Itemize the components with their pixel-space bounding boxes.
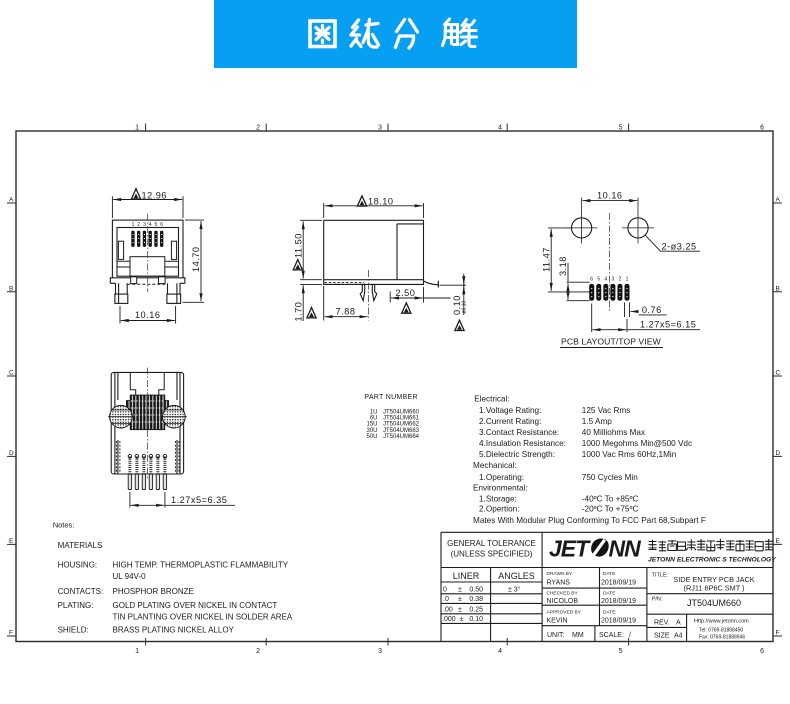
svg-text:1: 1 bbox=[135, 125, 139, 132]
svg-text:5.Dielectric Strength:: 5.Dielectric Strength: bbox=[479, 450, 555, 459]
svg-text:11.47: 11.47 bbox=[542, 247, 552, 272]
svg-text:E: E bbox=[9, 538, 14, 545]
svg-text:C: C bbox=[9, 370, 14, 377]
svg-text:JET: JET bbox=[549, 535, 591, 561]
svg-text:UL 94V-0: UL 94V-0 bbox=[113, 572, 147, 581]
svg-text:A: A bbox=[9, 197, 14, 204]
svg-text:125 Vac Rms: 125 Vac Rms bbox=[582, 406, 631, 415]
svg-text:D: D bbox=[776, 450, 781, 457]
svg-text:-20ºC To +75ºC: -20ºC To +75ºC bbox=[582, 505, 639, 514]
svg-text:±: ± bbox=[458, 606, 462, 613]
svg-text:0.50: 0.50 bbox=[469, 586, 483, 593]
svg-text:0: 0 bbox=[443, 586, 447, 593]
svg-text:A: A bbox=[776, 197, 781, 204]
svg-text:3: 3 bbox=[143, 222, 146, 228]
svg-text:2018/09/19: 2018/09/19 bbox=[601, 618, 636, 625]
svg-text:SHIELD:: SHIELD: bbox=[58, 626, 89, 635]
svg-text:(RJ11 6P6C SMT ): (RJ11 6P6C SMT ) bbox=[684, 583, 745, 592]
svg-text:4: 4 bbox=[604, 277, 607, 283]
svg-text:NN: NN bbox=[609, 535, 642, 561]
svg-text:CONTACTS:: CONTACTS: bbox=[58, 587, 104, 596]
svg-text:NICOLOB: NICOLOB bbox=[547, 598, 579, 605]
svg-text:B: B bbox=[9, 285, 13, 292]
svg-text:Fax: 0769-81888946: Fax: 0769-81888946 bbox=[699, 635, 745, 641]
svg-text:TIN PLANTING OVER NICKEL IN SO: TIN PLANTING OVER NICKEL IN SOLDER AREA bbox=[113, 612, 293, 621]
svg-text:Environmental:: Environmental: bbox=[473, 484, 528, 493]
svg-text:ø0.10: ø0.10 bbox=[462, 300, 468, 313]
svg-text:10.16: 10.16 bbox=[135, 310, 161, 320]
svg-text:SCALE:: SCALE: bbox=[599, 632, 624, 639]
svg-text:2-ø3.25: 2-ø3.25 bbox=[662, 242, 697, 252]
svg-text:1.Storage:: 1.Storage: bbox=[479, 495, 517, 504]
svg-text:50U: 50U bbox=[366, 434, 377, 440]
svg-text:C: C bbox=[776, 370, 781, 377]
svg-text:2.Current Rating:: 2.Current Rating: bbox=[479, 417, 541, 426]
svg-text:PCB LAYOUT/TOP VIEW: PCB LAYOUT/TOP VIEW bbox=[561, 337, 662, 347]
svg-text:E: E bbox=[776, 538, 781, 545]
svg-text:.0: .0 bbox=[443, 596, 449, 603]
svg-text:6: 6 bbox=[760, 648, 764, 655]
svg-text:JT504UM664: JT504UM664 bbox=[383, 434, 420, 440]
svg-text:6: 6 bbox=[160, 222, 163, 228]
svg-text:JT504UM662: JT504UM662 bbox=[383, 421, 420, 427]
svg-text:F: F bbox=[9, 630, 13, 637]
svg-text:0.76: 0.76 bbox=[642, 305, 662, 315]
svg-text:2.50: 2.50 bbox=[396, 288, 416, 298]
svg-text:A: A bbox=[676, 620, 681, 627]
svg-text:1000 Vac Rms 60Hz,1Min: 1000 Vac Rms 60Hz,1Min bbox=[582, 450, 677, 459]
svg-text:10.16: 10.16 bbox=[597, 190, 623, 200]
svg-text:GENERAL TOLERANCE: GENERAL TOLERANCE bbox=[447, 539, 536, 548]
svg-text:40 Milliohms Max: 40 Milliohms Max bbox=[582, 428, 645, 437]
svg-text:2: 2 bbox=[256, 125, 260, 132]
svg-text:0.25: 0.25 bbox=[469, 606, 483, 613]
svg-text:3.Contact Resistance:: 3.Contact Resistance: bbox=[479, 428, 559, 437]
svg-text:P/N:: P/N: bbox=[652, 597, 663, 603]
svg-text:(UNLESS SPECIFIED): (UNLESS SPECIFIED) bbox=[451, 550, 533, 559]
svg-text:BRASS PLATING NICKEL ALLOY: BRASS PLATING NICKEL ALLOY bbox=[113, 626, 235, 635]
svg-text:1.5 Amp: 1.5 Amp bbox=[582, 417, 612, 426]
svg-text:14.70: 14.70 bbox=[191, 247, 201, 273]
svg-text:Http://www.jetonn.com: Http://www.jetonn.com bbox=[694, 619, 749, 625]
svg-text:2: 2 bbox=[619, 277, 622, 283]
svg-text:1: 1 bbox=[135, 648, 139, 655]
svg-text:GOLD PLATING OVER NICKEL IN CO: GOLD PLATING OVER NICKEL IN CONTACT bbox=[113, 601, 278, 610]
svg-text:Tel: 0769-81888450: Tel: 0769-81888450 bbox=[699, 628, 743, 634]
svg-text:MATERIALS: MATERIALS bbox=[58, 541, 103, 550]
svg-text:4: 4 bbox=[498, 125, 502, 132]
svg-text:.00: .00 bbox=[443, 606, 453, 613]
svg-text:12.96: 12.96 bbox=[142, 190, 168, 200]
svg-text:REV.: REV. bbox=[654, 620, 670, 627]
svg-text:1.Operating:: 1.Operating: bbox=[479, 473, 524, 482]
svg-text:A4: A4 bbox=[674, 633, 683, 640]
svg-text:15U: 15U bbox=[366, 421, 377, 427]
svg-text:DATE: DATE bbox=[603, 571, 615, 577]
svg-text:1.27x5=6.15: 1.27x5=6.15 bbox=[640, 320, 696, 330]
svg-text:6: 6 bbox=[760, 125, 764, 132]
svg-text:PHOSPHOR BRONZE: PHOSPHOR BRONZE bbox=[113, 587, 194, 596]
svg-text:5: 5 bbox=[619, 125, 623, 132]
svg-text:JETONN ELECTRONIC S TECHNOLOGY: JETONN ELECTRONIC S TECHNOLOGY bbox=[648, 557, 776, 564]
svg-text:MM: MM bbox=[572, 632, 584, 639]
svg-text:D: D bbox=[9, 450, 14, 457]
svg-text:5: 5 bbox=[597, 277, 600, 283]
svg-text:1: 1 bbox=[626, 277, 629, 283]
svg-text:4.Insulation Resistance:: 4.Insulation Resistance: bbox=[479, 439, 566, 448]
svg-text:750 Cycles Min: 750 Cycles Min bbox=[582, 473, 638, 482]
svg-text:5: 5 bbox=[619, 648, 623, 655]
svg-text:4: 4 bbox=[149, 222, 152, 228]
svg-text:/: / bbox=[629, 632, 631, 639]
svg-text:±: ± bbox=[458, 586, 462, 593]
svg-text:CHECKED BY: CHECKED BY bbox=[547, 591, 579, 597]
svg-text:6: 6 bbox=[590, 277, 593, 283]
svg-text:RYANS: RYANS bbox=[547, 580, 571, 587]
svg-text:0.10: 0.10 bbox=[469, 616, 483, 623]
svg-text:DRAWN BY: DRAWN BY bbox=[547, 571, 573, 577]
svg-text:2.Opertion:: 2.Opertion: bbox=[479, 505, 520, 514]
svg-text:DATE: DATE bbox=[603, 610, 615, 616]
svg-text:18.10: 18.10 bbox=[368, 197, 394, 207]
svg-text:1.70: 1.70 bbox=[294, 302, 304, 322]
svg-text:1.27x5=6.35: 1.27x5=6.35 bbox=[171, 495, 227, 505]
svg-text:0.38: 0.38 bbox=[469, 596, 483, 603]
svg-text:7.88: 7.88 bbox=[336, 306, 356, 316]
svg-text:4: 4 bbox=[498, 648, 502, 655]
svg-text:TITLE:: TITLE: bbox=[652, 573, 669, 579]
svg-text:APPROVED BY: APPROVED BY bbox=[547, 610, 582, 616]
svg-text:1000 Megohms Min@500 Vdc: 1000 Megohms Min@500 Vdc bbox=[582, 439, 692, 448]
svg-text:HOUSING:: HOUSING: bbox=[58, 561, 98, 570]
svg-text:SIZE: SIZE bbox=[654, 633, 670, 640]
svg-text:HIGH TEMP. THERMOPLASTIC FLAMM: HIGH TEMP. THERMOPLASTIC FLAMMABILITY bbox=[113, 561, 289, 570]
svg-text:2018/09/19: 2018/09/19 bbox=[601, 598, 636, 605]
svg-text:11.50: 11.50 bbox=[294, 233, 304, 258]
svg-text:2: 2 bbox=[256, 648, 260, 655]
svg-text:PLATING:: PLATING: bbox=[58, 601, 94, 610]
svg-text:LINER: LINER bbox=[453, 571, 480, 581]
svg-text:2: 2 bbox=[137, 222, 140, 228]
svg-text:F: F bbox=[776, 630, 780, 637]
svg-text:UNIT:: UNIT: bbox=[547, 632, 565, 639]
svg-text:0.10: 0.10 bbox=[452, 295, 462, 315]
svg-text:2018/09/19: 2018/09/19 bbox=[601, 580, 636, 587]
svg-text:3: 3 bbox=[378, 125, 382, 132]
svg-text:B: B bbox=[776, 285, 780, 292]
svg-text:3: 3 bbox=[612, 277, 615, 283]
svg-text:Electrical:: Electrical: bbox=[474, 395, 510, 404]
svg-text:Mechanical:: Mechanical: bbox=[473, 461, 517, 470]
svg-text:ANGLES: ANGLES bbox=[498, 571, 535, 581]
svg-text:1: 1 bbox=[132, 222, 135, 228]
svg-text:±: ± bbox=[460, 616, 464, 623]
svg-text:JT504UM660: JT504UM660 bbox=[687, 598, 741, 608]
svg-text:3.18: 3.18 bbox=[558, 256, 568, 276]
svg-text:± 3°: ± 3° bbox=[508, 585, 521, 593]
svg-text:.000: .000 bbox=[442, 616, 456, 623]
svg-text:3: 3 bbox=[378, 648, 382, 655]
svg-text:5: 5 bbox=[155, 222, 158, 228]
svg-text:1.Voltage Rating:: 1.Voltage Rating: bbox=[479, 406, 541, 415]
svg-text:Mates With Modular Plug Confor: Mates With Modular Plug Conforming To FC… bbox=[473, 516, 706, 525]
svg-text:-40ºC To +85ºC: -40ºC To +85ºC bbox=[582, 495, 639, 504]
svg-text:Notes:: Notes: bbox=[53, 520, 75, 529]
svg-text:DATE: DATE bbox=[603, 591, 615, 597]
svg-text:±: ± bbox=[458, 596, 462, 603]
svg-text:KEVIN: KEVIN bbox=[547, 618, 568, 625]
svg-text:PART NUMBER: PART NUMBER bbox=[364, 394, 417, 401]
